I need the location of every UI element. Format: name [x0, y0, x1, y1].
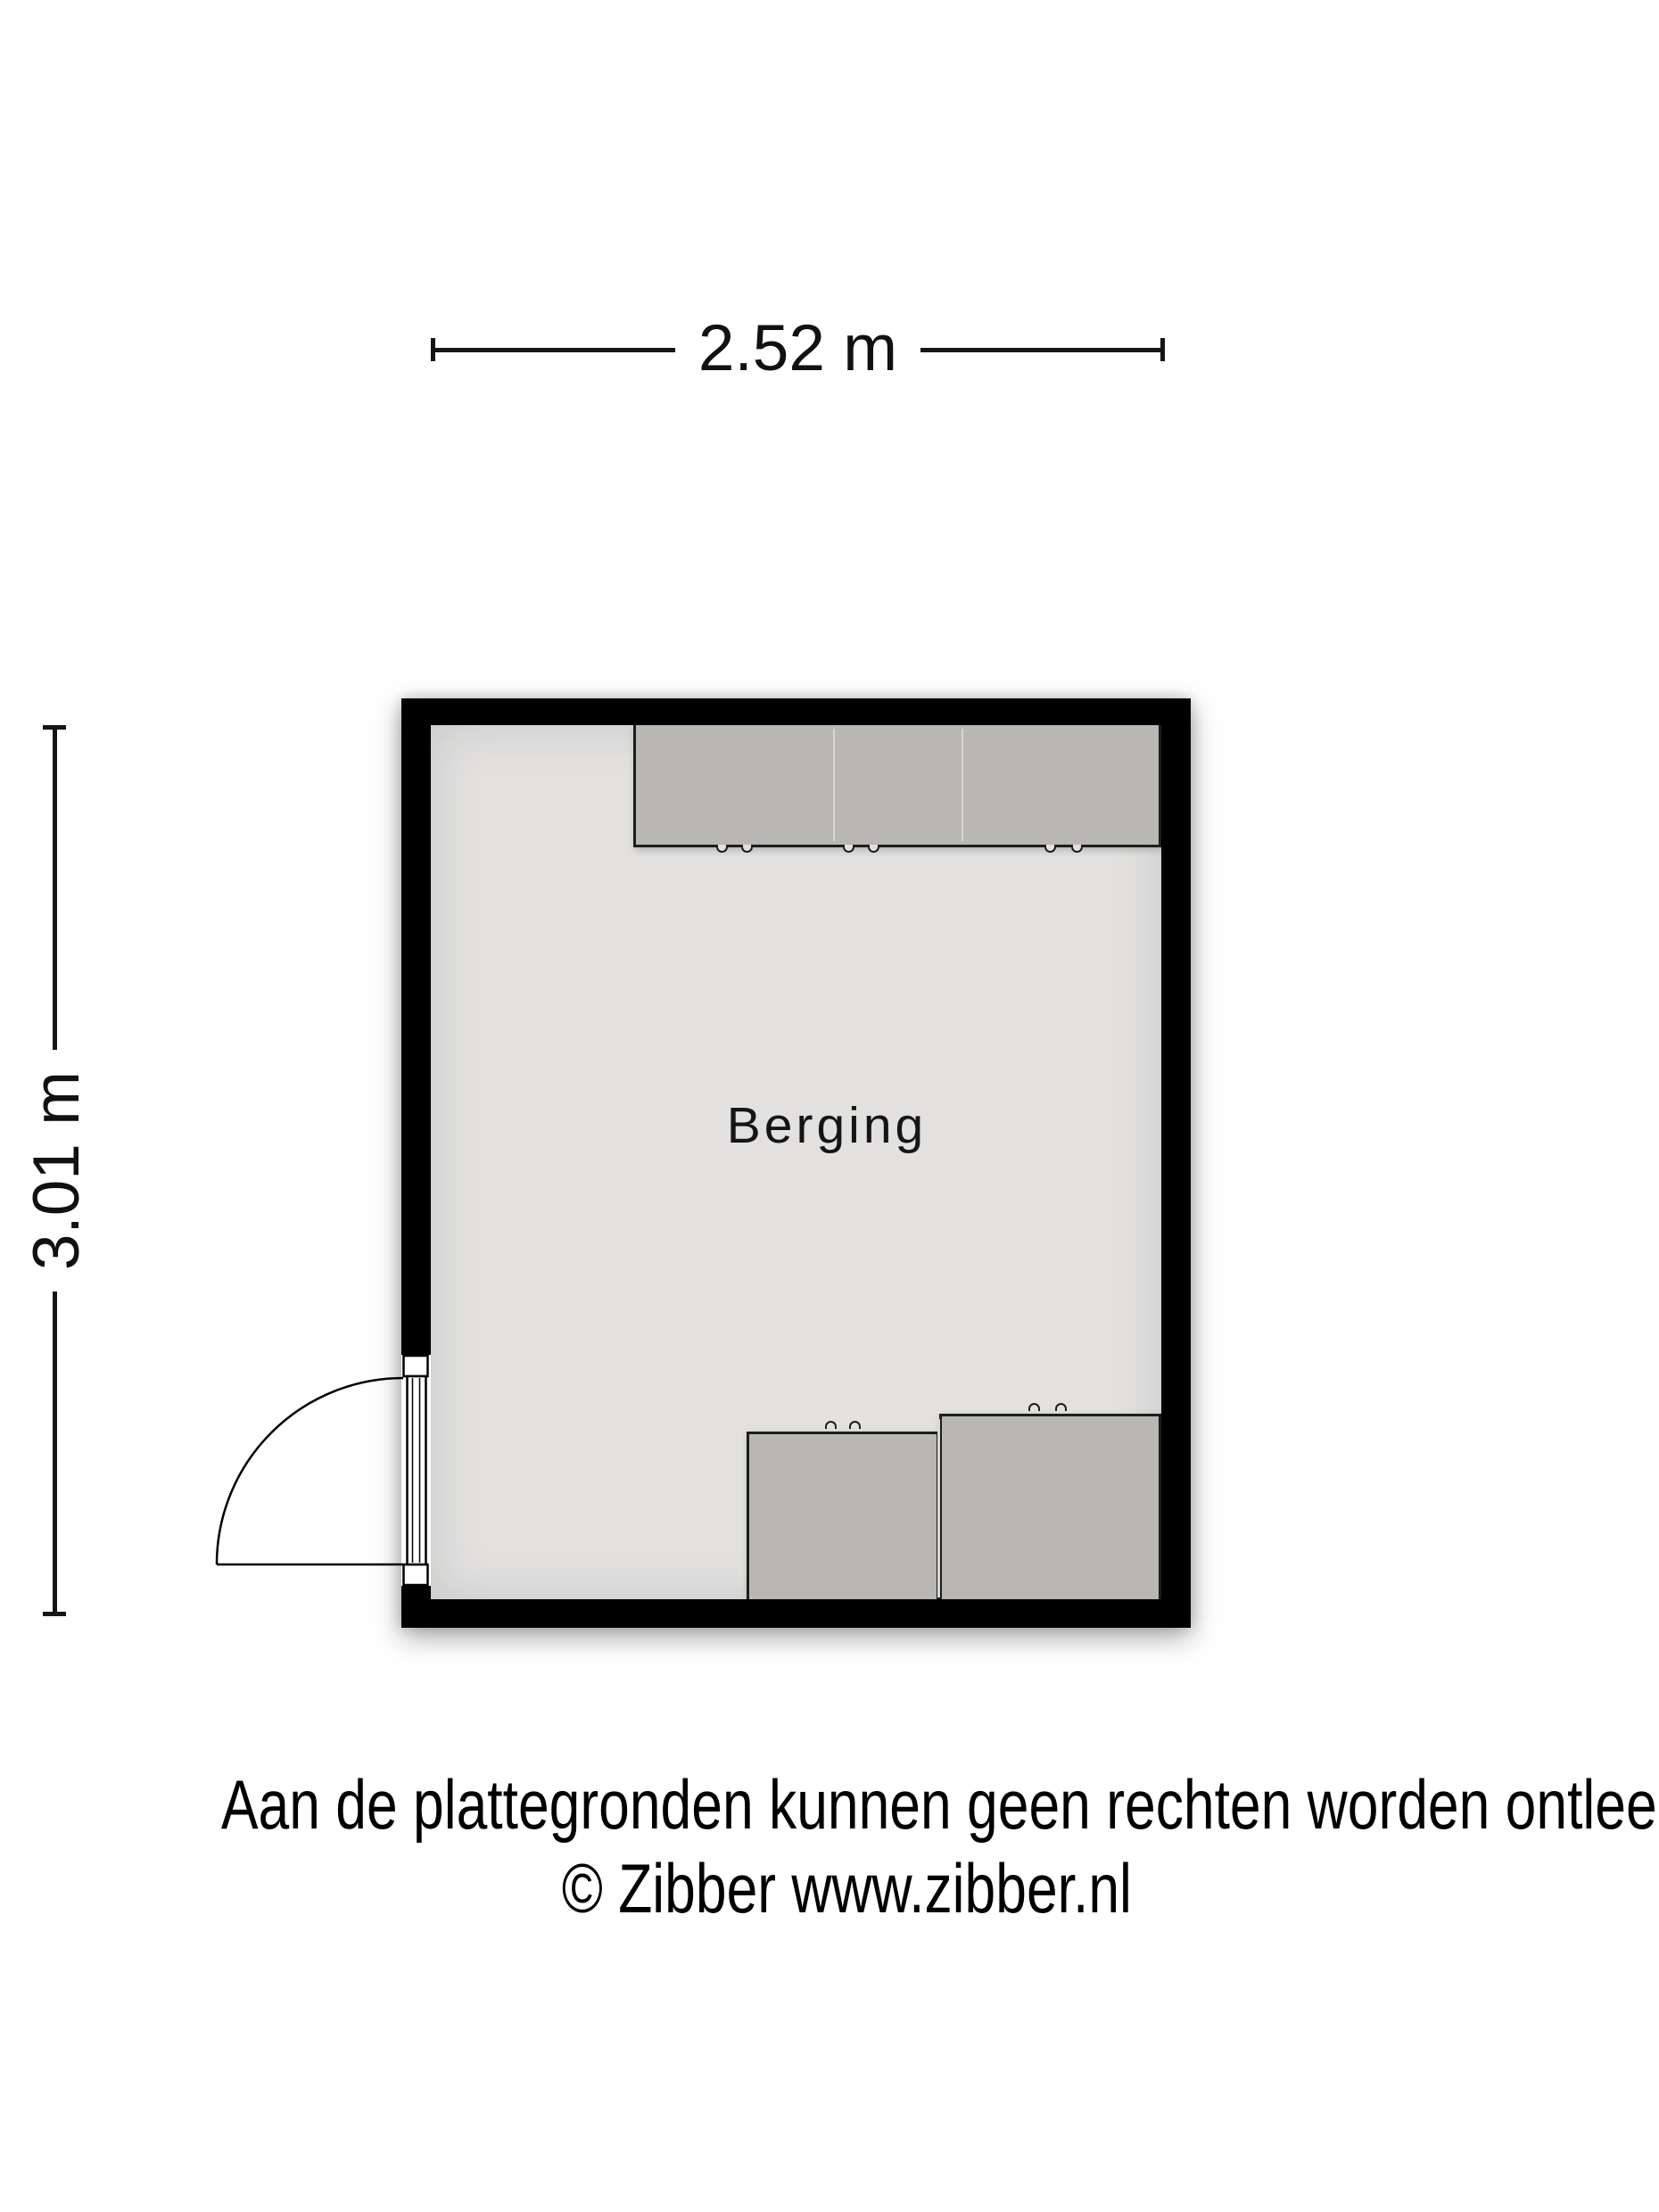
door-leaf: [408, 1376, 426, 1564]
door-jamb-bottom: [404, 1564, 428, 1585]
floorplan-page: 2.52 m 3.01 m Berging: [0, 0, 1659, 2212]
disclaimer-text: Aan de plattegronden kunnen geen rechten…: [221, 1762, 1659, 1846]
footer: Aan de plattegronden kunnen geen rechten…: [0, 1762, 1659, 1930]
copyright-text: © Zibber www.zibber.nl: [561, 1846, 1131, 1930]
door-swing-arc: [217, 1378, 403, 1564]
door-jamb-top: [404, 1356, 428, 1376]
